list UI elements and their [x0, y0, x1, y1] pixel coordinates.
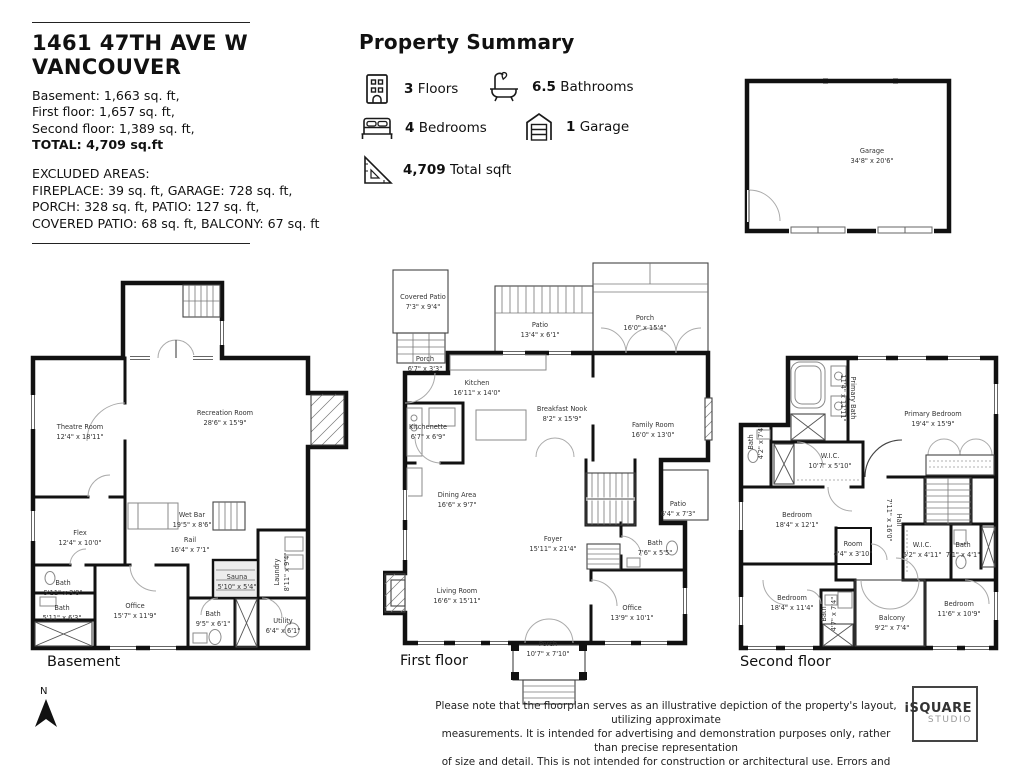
second-floor-area: Second floor: 1,389 sq. ft, — [32, 121, 352, 137]
disclaimer-line1: Please note that the floorplan serves as… — [432, 700, 900, 728]
room-label: Porch16'0" x 15'4" — [624, 314, 667, 334]
bedrooms-text: 4 Bedrooms — [405, 120, 487, 136]
isquare-studio-logo: iSQUARE STUDIO — [912, 686, 978, 742]
excluded-line1: FIREPLACE: 39 sq. ft, GARAGE: 728 sq. ft… — [32, 183, 352, 199]
floorplan-page: 1461 47TH AVE W VANCOUVER Basement: 1,66… — [0, 0, 1024, 768]
room-label: Kitchenette6'7" x 6'9" — [409, 423, 447, 443]
room-label: Hall7'11" x 16'0" — [883, 499, 903, 542]
room-label: Utility6'4" x 6'1" — [266, 617, 301, 637]
room-label: Bath7'6" x 5'5" — [638, 539, 673, 559]
room-label: Bath7'1" x 4'1" — [946, 541, 981, 561]
room-label-garage: Garage34'8" x 20'6" — [851, 147, 894, 167]
ruler-icon — [358, 152, 394, 188]
header-block: 1461 47TH AVE W VANCOUVER Basement: 1,66… — [32, 22, 352, 244]
room-label: Patio6'4" x 7'3" — [661, 500, 696, 520]
disclaimer-line3: of size and detail. This is not intended… — [432, 756, 900, 768]
logo-line1: iSQUARE — [905, 702, 972, 715]
summary-total: 4,709 Total sqft — [358, 152, 511, 188]
room-label: Room4'4" x 3'10" — [834, 540, 873, 560]
disclaimer-line2: measurements. It is intended for adverti… — [432, 728, 900, 756]
summary-title: Property Summary — [359, 30, 575, 54]
bathrooms-text: 6.5 Bathrooms — [532, 79, 634, 95]
floors-text: 3 Floors — [404, 81, 458, 97]
room-label: Bath4'7" x 7'4" — [820, 597, 840, 632]
bed-icon — [358, 110, 396, 146]
basement-area: Basement: 1,663 sq. ft, — [32, 88, 352, 104]
logo-line2: STUDIO — [928, 715, 972, 726]
excluded-areas: EXCLUDED AREAS: FIREPLACE: 39 sq. ft, GA… — [32, 166, 352, 231]
room-label: Bath4'2" x 7'4" — [747, 425, 767, 460]
room-label: Porch6'7" x 3'3" — [408, 355, 443, 375]
summary-bathrooms: 6.5 Bathrooms — [485, 68, 634, 106]
building-icon — [359, 71, 395, 107]
address-line1: 1461 47TH AVE W — [32, 32, 352, 56]
north-label: N — [40, 686, 47, 697]
first-floor-label: First floor — [400, 653, 468, 669]
room-label: Bedroom18'4" x 12'1" — [776, 511, 819, 531]
room-label: Patio13'4" x 6'1" — [521, 321, 560, 341]
address: 1461 47TH AVE W VANCOUVER — [32, 32, 352, 79]
room-label: Covered Patio7'3" x 9'4" — [400, 293, 446, 313]
room-label: Office15'7" x 11'9" — [114, 602, 157, 622]
excluded-line2: PORCH: 328 sq. ft, PATIO: 127 sq. ft, — [32, 199, 352, 215]
summary-floors: 3 Floors — [359, 71, 458, 107]
room-label: Kitchen16'11" x 14'0" — [453, 379, 500, 399]
room-label: Laundry8'11" x 9'4" — [273, 553, 293, 592]
room-label: Rail16'4" x 7'1" — [171, 536, 210, 556]
second-floor-label: Second floor — [740, 654, 831, 670]
north-arrow-icon — [31, 697, 61, 729]
excluded-title: EXCLUDED AREAS: — [32, 166, 352, 182]
bottom-rule — [32, 243, 250, 244]
room-label: Sauna5'10" x 5'4" — [218, 573, 257, 593]
room-label: Dining Area16'6" x 9'7" — [438, 491, 477, 511]
room-label: Recreation Room28'6" x 15'9" — [197, 409, 253, 429]
total-sqft-text: 4,709 Total sqft — [403, 162, 511, 178]
first-floor-area: First floor: 1,657 sq. ft, — [32, 104, 352, 120]
room-label: W.I.C.6'2" x 4'11" — [903, 541, 942, 561]
excluded-line3: COVERED PATIO: 68 sq. ft, BALCONY: 67 sq… — [32, 216, 352, 232]
room-label: W.I.C.10'7" x 5'10" — [809, 452, 852, 472]
total-area: TOTAL: 4,709 sq.ft — [32, 137, 352, 153]
room-label: Primary Bath11'4" x 11'11" — [837, 374, 857, 421]
room-label: Balcony9'2" x 7'4" — [875, 614, 910, 634]
basement-label: Basement — [47, 654, 120, 670]
summary-bedrooms: 4 Bedrooms — [358, 110, 487, 146]
bathtub-icon — [485, 68, 523, 106]
room-label: Theatre Room12'4" x 18'11" — [56, 423, 103, 443]
room-label: Office13'9" x 10'1" — [611, 604, 654, 624]
room-label: Family Room16'0" x 13'0" — [632, 421, 675, 441]
disclaimer: Please note that the floorplan serves as… — [432, 700, 900, 768]
summary-garage: 1 Garage — [521, 109, 629, 145]
room-label: Bath5'11" x 3'8" — [44, 579, 83, 599]
garage-text: 1 Garage — [566, 119, 629, 135]
area-stats: Basement: 1,663 sq. ft, First floor: 1,6… — [32, 88, 352, 153]
room-label: Bath9'5" x 6'1" — [196, 610, 231, 630]
room-label: Bedroom18'4" x 11'4" — [771, 594, 814, 614]
room-label: Primary Bedroom19'4" x 15'9" — [904, 410, 961, 430]
room-label: Flex12'4" x 10'0" — [59, 529, 102, 549]
room-label: Living Room16'6" x 15'11" — [433, 587, 480, 607]
top-rule — [32, 22, 250, 23]
room-label: Wet Bar19'5" x 8'6" — [173, 511, 212, 531]
address-line2: VANCOUVER — [32, 56, 352, 80]
room-label: Breakfast Nook8'2" x 15'9" — [537, 405, 587, 425]
room-label: Porch10'7" x 7'10" — [527, 640, 570, 660]
room-label: Bath5'11" x 6'3" — [43, 604, 82, 624]
garage-icon — [521, 109, 557, 145]
room-label: Foyer15'11" x 21'4" — [529, 535, 576, 555]
garage-floorplan — [743, 75, 955, 237]
room-label: Bedroom11'6" x 10'9" — [938, 600, 981, 620]
